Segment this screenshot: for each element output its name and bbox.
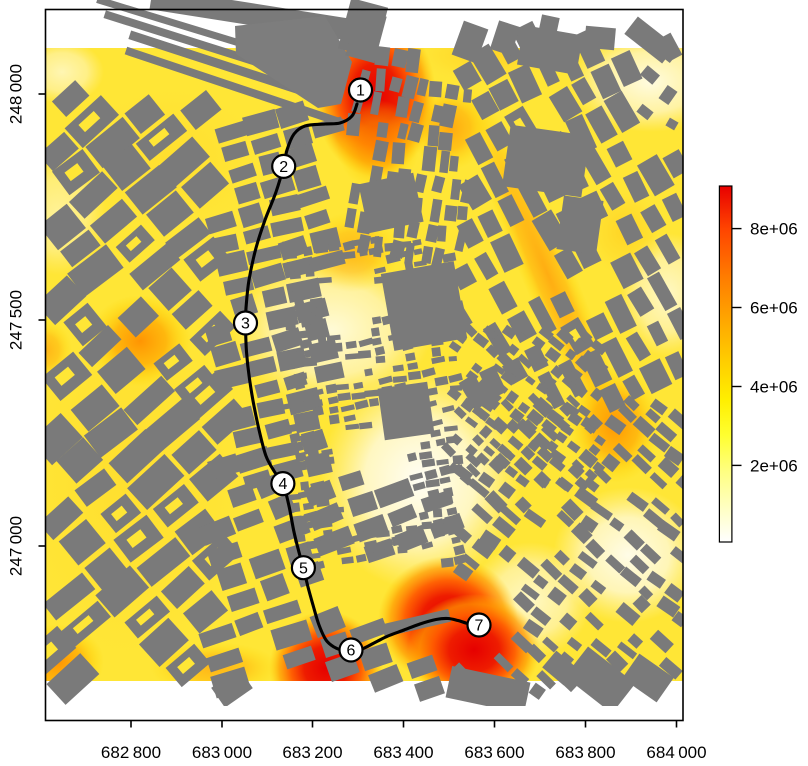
svg-text:682 800: 682 800	[101, 743, 161, 762]
svg-text:8e+06: 8e+06	[750, 220, 798, 239]
svg-text:683 000: 683 000	[192, 743, 252, 762]
svg-text:683 800: 683 800	[555, 743, 615, 762]
svg-text:683 600: 683 600	[464, 743, 524, 762]
svg-text:7: 7	[475, 618, 484, 635]
svg-text:683 200: 683 200	[282, 743, 342, 762]
svg-text:683 400: 683 400	[373, 743, 433, 762]
svg-text:247 000: 247 000	[7, 516, 26, 576]
svg-text:5: 5	[299, 560, 308, 577]
svg-text:2e+06: 2e+06	[750, 456, 798, 475]
svg-text:684 000: 684 000	[646, 743, 706, 762]
svg-text:6: 6	[347, 643, 356, 660]
svg-text:1: 1	[356, 83, 365, 100]
svg-text:2: 2	[279, 159, 288, 176]
svg-text:6e+06: 6e+06	[750, 299, 798, 318]
svg-text:4e+06: 4e+06	[750, 378, 798, 397]
svg-text:248 000: 248 000	[7, 64, 26, 124]
svg-text:4: 4	[278, 476, 287, 493]
svg-text:3: 3	[241, 316, 250, 333]
svg-text:247 500: 247 500	[7, 290, 26, 350]
